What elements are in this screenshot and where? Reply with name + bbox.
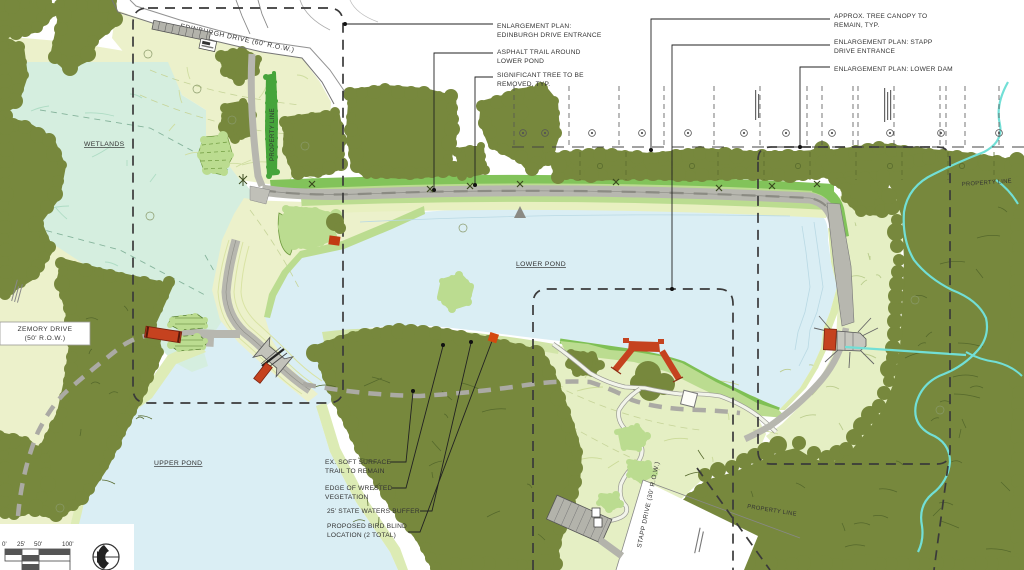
svg-text:50': 50' — [34, 541, 42, 548]
svg-text:WETLANDS: WETLANDS — [84, 141, 125, 148]
svg-text:EDGE OF WRESTED: EDGE OF WRESTED — [325, 485, 393, 492]
svg-text:(50' R.O.W.): (50' R.O.W.) — [25, 335, 66, 342]
svg-text:ENLARGEMENT PLAN:: ENLARGEMENT PLAN: — [497, 23, 571, 30]
svg-text:REMAIN, TYP.: REMAIN, TYP. — [834, 22, 879, 29]
svg-text:25': 25' — [17, 541, 25, 548]
svg-text:SIGNIFICANT TREE TO BE: SIGNIFICANT TREE TO BE — [497, 72, 584, 79]
svg-text:ZEMORY DRIVE: ZEMORY DRIVE — [18, 326, 73, 333]
svg-text:LOWER POND: LOWER POND — [516, 261, 566, 268]
svg-text:REMOVED, TYP.: REMOVED, TYP. — [497, 81, 550, 88]
svg-text:ENLARGEMENT PLAN: LOWER DAM: ENLARGEMENT PLAN: LOWER DAM — [834, 66, 953, 73]
svg-text:UPPER POND: UPPER POND — [154, 460, 202, 467]
svg-text:DRIVE ENTRANCE: DRIVE ENTRANCE — [834, 48, 895, 55]
svg-text:VEGETATION: VEGETATION — [325, 494, 369, 501]
svg-text:25' STATE WATERS BUFFER: 25' STATE WATERS BUFFER — [327, 508, 420, 515]
svg-text:EDINBURGH DRIVE ENTRANCE: EDINBURGH DRIVE ENTRANCE — [497, 32, 602, 39]
svg-text:ENLARGEMENT PLAN: STAPP: ENLARGEMENT PLAN: STAPP — [834, 39, 933, 46]
svg-text:100': 100' — [62, 541, 74, 548]
svg-text:PROPERTY LINE: PROPERTY LINE — [270, 108, 276, 161]
svg-text:TRAIL TO REMAIN: TRAIL TO REMAIN — [325, 468, 385, 475]
svg-text:APPROX. TREE CANOPY TO: APPROX. TREE CANOPY TO — [834, 13, 927, 20]
svg-text:ASPHALT TRAIL AROUND: ASPHALT TRAIL AROUND — [497, 49, 581, 56]
svg-text:LOCATION (2 TOTAL): LOCATION (2 TOTAL) — [327, 532, 396, 539]
svg-text:PROPOSED BIRD BLIND: PROPOSED BIRD BLIND — [327, 523, 407, 530]
svg-text:0': 0' — [2, 541, 7, 548]
svg-text:EX. SOFT SURFACE: EX. SOFT SURFACE — [325, 459, 391, 466]
svg-text:LOWER POND: LOWER POND — [497, 58, 544, 65]
